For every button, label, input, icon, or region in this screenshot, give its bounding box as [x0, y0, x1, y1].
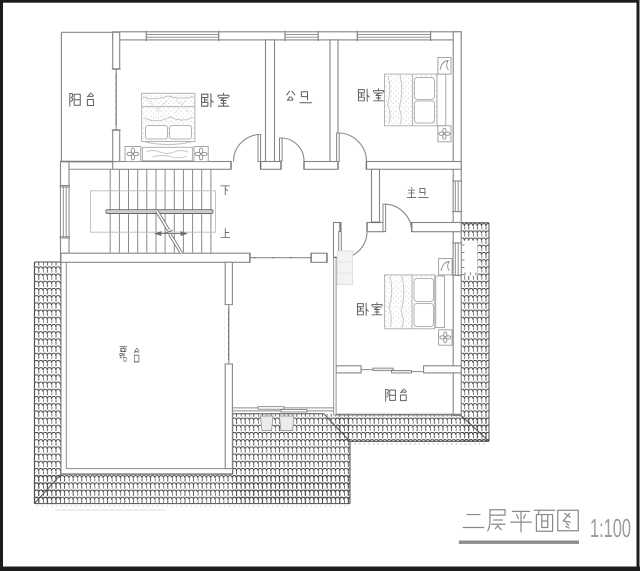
- svg-text:1:100: 1:100: [590, 513, 631, 543]
